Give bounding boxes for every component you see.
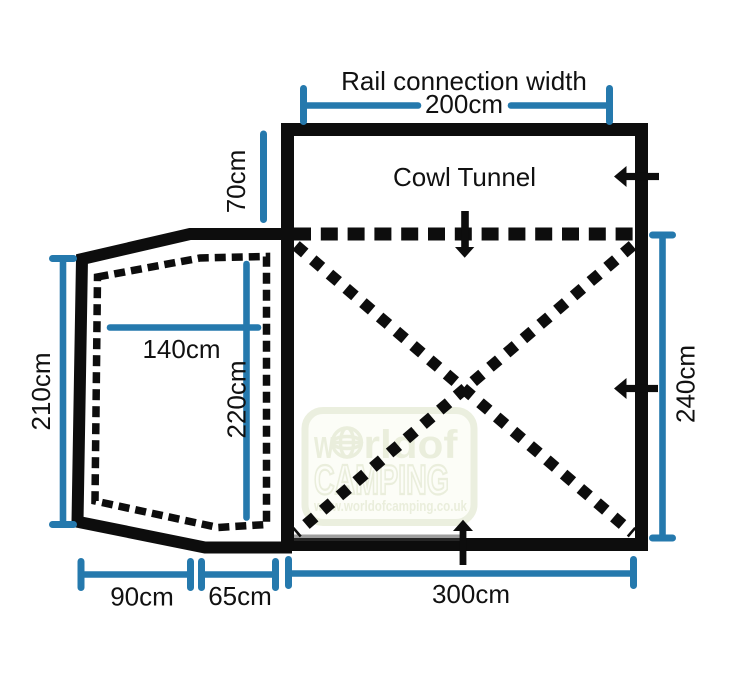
- svg-text:210cm: 210cm: [26, 352, 56, 430]
- svg-text:200cm: 200cm: [425, 89, 503, 119]
- svg-text:70cm: 70cm: [221, 150, 251, 214]
- svg-text:90cm: 90cm: [110, 582, 174, 612]
- svg-text:140cm: 140cm: [142, 334, 220, 364]
- svg-text:240cm: 240cm: [671, 345, 701, 423]
- svg-text:www.worldofcamping.co.uk: www.worldofcamping.co.uk: [313, 498, 467, 515]
- svg-text:300cm: 300cm: [432, 579, 510, 609]
- svg-text:Cowl Tunnel: Cowl Tunnel: [393, 162, 536, 192]
- svg-text:65cm: 65cm: [208, 581, 272, 611]
- svg-text:220cm: 220cm: [222, 360, 252, 438]
